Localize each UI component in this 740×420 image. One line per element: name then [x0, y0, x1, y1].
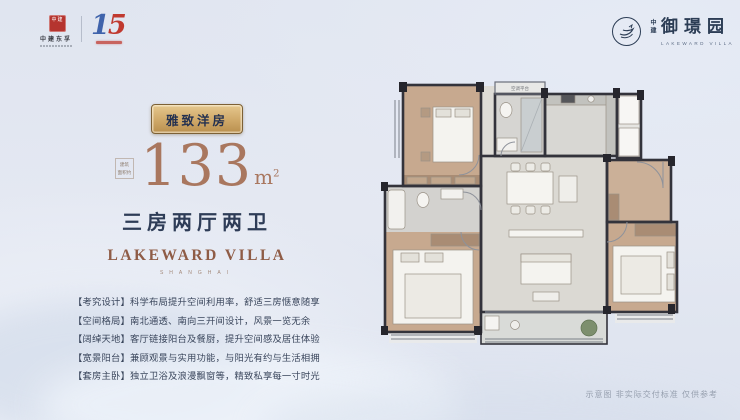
- feature-item: 【空间格局】南北通透、南向三开间设计，风景一览无余: [73, 312, 323, 331]
- coffee-table: [533, 292, 559, 301]
- anniversary-digit-1: 1: [91, 10, 110, 41]
- developer-tagline-bar: [40, 45, 72, 47]
- tv-console: [509, 230, 583, 237]
- feature-item: 【套房主卧】独立卫浴及浪漫飘窗等，精致私享每一寸时光: [73, 367, 323, 386]
- plant: [581, 320, 597, 336]
- kitchen-sink: [588, 96, 594, 102]
- bathtub: [388, 190, 405, 229]
- city-en: SHANGHAI: [62, 270, 332, 276]
- brand-en: LAKEWARD VILLA: [62, 247, 332, 265]
- ac-platform-label: 空调平台: [511, 85, 529, 92]
- anniversary-15-logo: 15: [91, 12, 127, 44]
- fridge: [619, 96, 639, 124]
- hero-panel: 雅致洋房 建筑 面积约 133 m2 三房两厅两卫 LAKEWARD VILLA…: [62, 104, 332, 276]
- developer-logo-group: 中建 中建东孚 15: [40, 15, 127, 47]
- product-type-badge: 雅致洋房: [151, 104, 243, 134]
- area-figure: 建筑 面积约 133 m2: [62, 141, 332, 191]
- feature-list: 【考究设计】科学布局提升空间利用率，舒适三房惬意随享 【空间格局】南北通透、南向…: [73, 293, 323, 386]
- cabinet: [619, 128, 639, 156]
- area-unit-m: m: [254, 165, 273, 189]
- toilet: [417, 193, 429, 208]
- layout-spec: 三房两厅两卫: [62, 206, 332, 235]
- promo-poster: 中建 中建东孚 15 中建 御璟园 LAKEWARD VILLA 雅致洋房: [0, 0, 740, 420]
- stove: [561, 95, 575, 103]
- developer-seal-icon: 中建: [49, 15, 66, 32]
- sideboard: [559, 176, 577, 202]
- anniversary-digit-5: 5: [108, 10, 127, 41]
- wardrobe-3: [635, 224, 677, 236]
- anniversary-caption-bar: [96, 41, 122, 44]
- feature-item: 【考究设计】科学布局提升空间利用率，舒适三房惬意随享: [73, 293, 323, 312]
- crane-emblem-icon: [612, 17, 641, 46]
- project-brand-vertical: 中建: [648, 19, 657, 35]
- wardrobe: [431, 234, 479, 246]
- toilet-2: [500, 103, 512, 118]
- area-unit-sup: 2: [273, 168, 279, 179]
- feature-item: 【阔绰天地】客厅链接阳台及餐厨，提升空间感及居住体验: [73, 330, 323, 349]
- project-logo-group: 中建 御璟园 LAKEWARD VILLA: [612, 15, 734, 46]
- washer: [485, 316, 499, 330]
- stool: [511, 321, 520, 330]
- anniversary-number: 15: [91, 12, 127, 40]
- project-name-en: LAKEWARD VILLA: [661, 41, 734, 46]
- dining-table: [507, 172, 553, 204]
- developer-logo: 中建 中建东孚: [40, 15, 72, 47]
- area-prefix-line2: 面积约: [118, 169, 132, 176]
- vanity: [441, 189, 463, 199]
- shoe-cabinet: [609, 194, 619, 220]
- feature-item: 【宽景阳台】兼顾观景与实用功能，与阳光有约与生活相拥: [73, 349, 323, 368]
- area-unit: m2: [254, 165, 279, 189]
- area-prefix-note: 建筑 面积约: [115, 158, 135, 179]
- floor-plan-image: 空调平台: [375, 78, 680, 350]
- project-name: 御璟园: [661, 15, 734, 39]
- floor-plan-svg: 空调平台: [375, 78, 680, 350]
- area-prefix-line1: 建筑: [118, 161, 132, 168]
- area-value: 133: [140, 141, 252, 191]
- developer-name: 中建东孚: [40, 34, 72, 43]
- logo-divider: [81, 16, 82, 42]
- disclaimer-text: 示意图 非实际交付标准 仅供参考: [586, 389, 718, 400]
